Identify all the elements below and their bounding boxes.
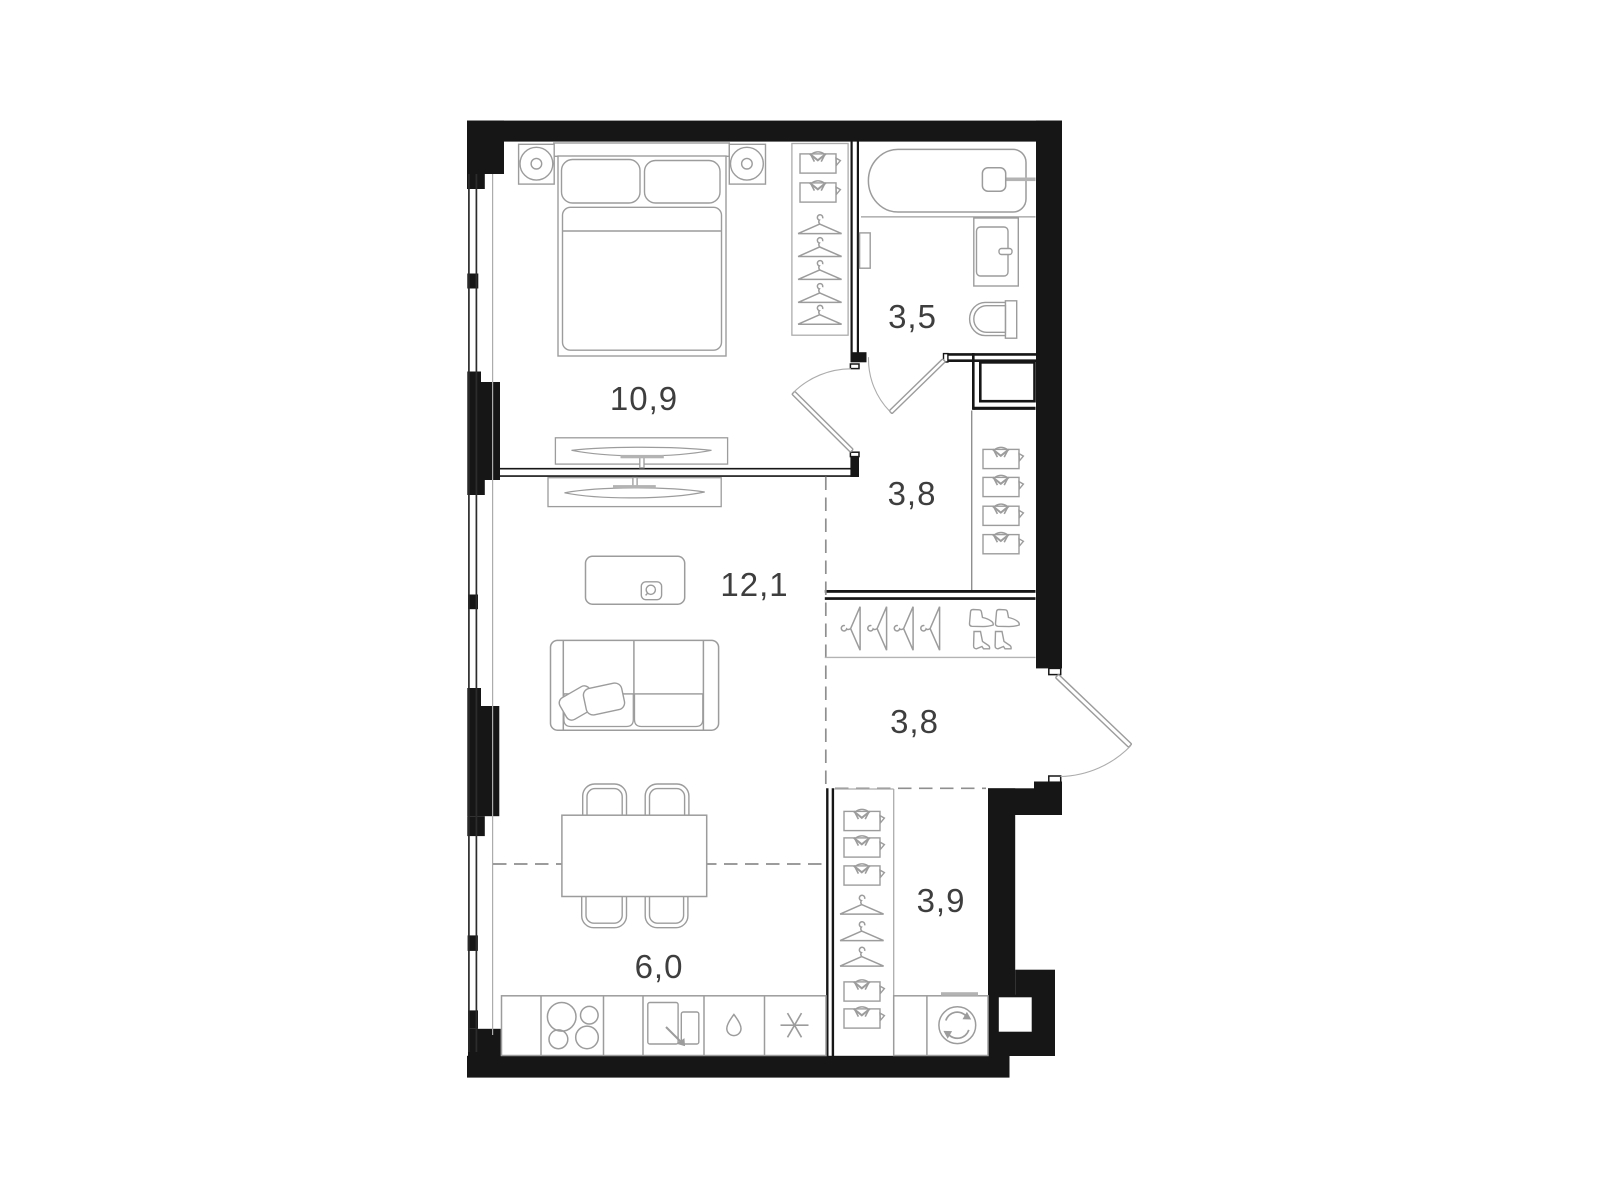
- svg-text:3,5: 3,5: [888, 298, 937, 335]
- svg-text:3,9: 3,9: [917, 882, 966, 919]
- svg-text:3,8: 3,8: [888, 475, 937, 512]
- svg-text:6,0: 6,0: [635, 948, 684, 985]
- svg-text:10,9: 10,9: [610, 380, 678, 417]
- svg-text:3,8: 3,8: [890, 703, 939, 740]
- svg-text:12,1: 12,1: [720, 566, 788, 603]
